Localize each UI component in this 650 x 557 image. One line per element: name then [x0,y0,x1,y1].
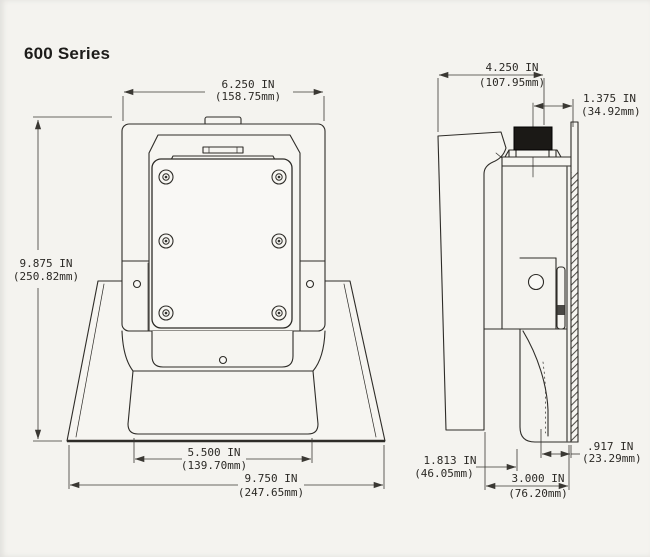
dim-depth-in: 4.250 IN [486,61,539,74]
slot-clip [558,305,565,315]
gasket-hatch [572,172,578,441]
dim-pad-depth-mm: (23.29mm) [582,452,642,465]
dim-top-width-mm: (158.75mm) [215,90,281,103]
power-connector [514,127,552,150]
dim-bracket-offset-in: 1.813 IN [424,454,477,467]
louver-profile [523,331,548,436]
dim-louver-width-mm: (139.70mm) [181,459,247,472]
dim-louver-width-in: 5.500 IN [188,446,241,459]
dim-body-depth-in: 3.000 IN [512,472,565,485]
technical-drawing: 6.250 IN (158.75mm) 9.875 IN (250.82mm) … [0,0,650,557]
top-plate [502,157,573,166]
dim-connector-offset-mm: (34.92mm) [581,105,641,118]
mounting-hole [307,281,314,288]
dim-height-mm: (250.82mm) [13,270,79,283]
dim-bracket-offset-mm: (46.05mm) [414,467,474,480]
side-hole [529,275,544,290]
front-view [67,117,385,441]
dim-connector-offset-in: 1.375 IN [583,92,636,105]
dim-height-in: 9.875 IN [20,257,73,270]
mounting-bracket-profile [438,132,506,430]
mounting-hole [134,281,141,288]
dim-depth-mm: (107.95mm) [479,76,545,89]
slot [557,267,565,329]
side-view [438,103,578,442]
dim-body-depth-mm: (76.20mm) [508,487,568,500]
dim-base-width-in: 9.750 IN [245,472,298,485]
dim-base-width-mm: (247.65mm) [238,486,304,499]
drawing-page: 600 Series [0,0,650,557]
drain-hole [220,357,227,364]
